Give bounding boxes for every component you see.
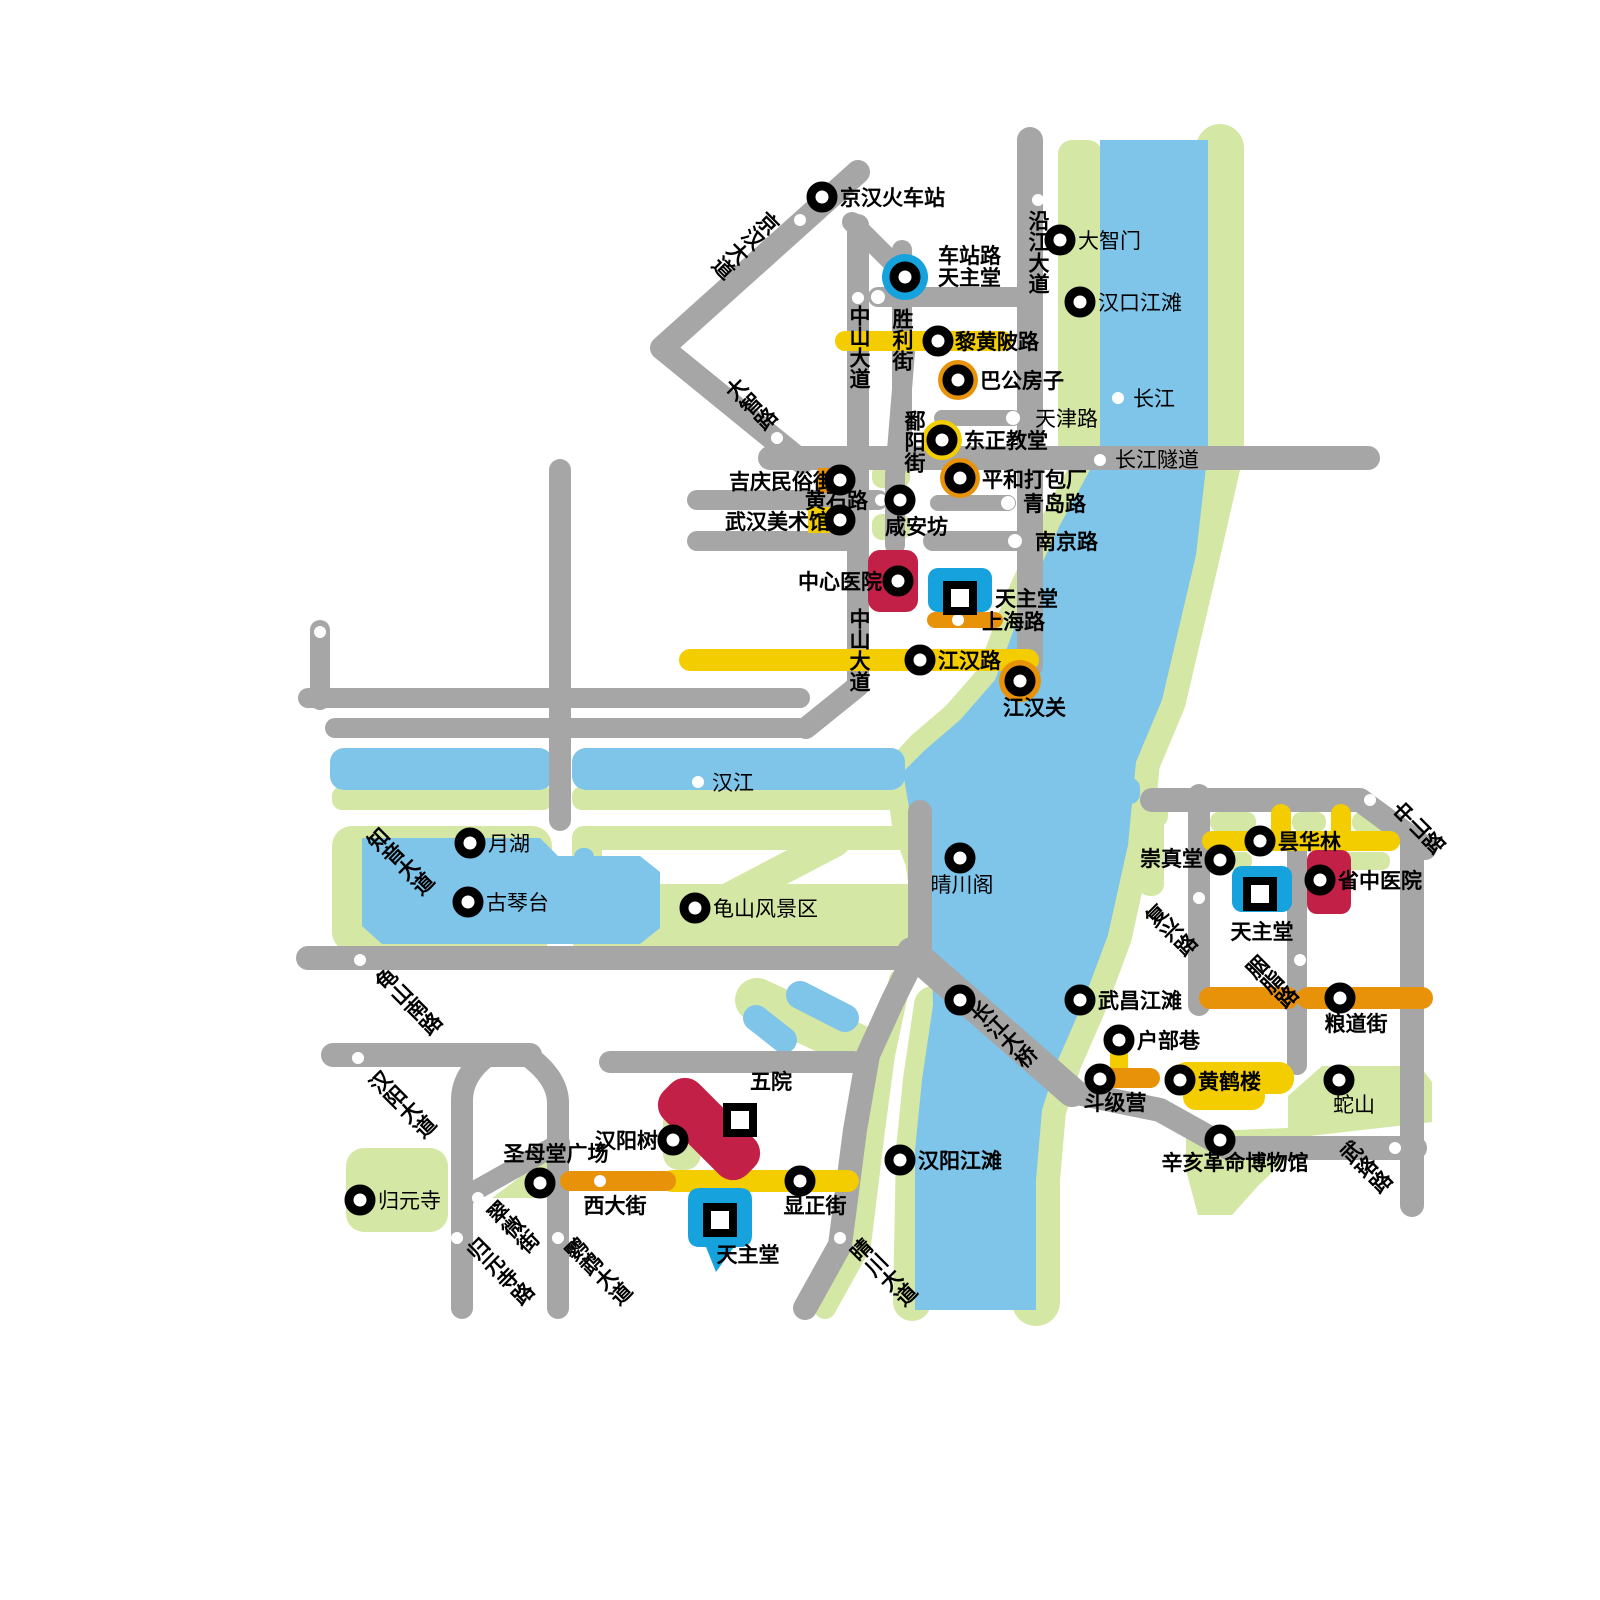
poi-marker-icon xyxy=(789,1170,811,1192)
label-dazhimen: 大智门 xyxy=(1078,229,1141,253)
road-dot-icon xyxy=(692,776,704,788)
road-dot-icon xyxy=(552,1232,564,1244)
poi-marker-icon xyxy=(931,429,953,451)
label-catholic-church-chezhanlu: 天主堂 xyxy=(938,266,1001,290)
poi-marker-icon xyxy=(949,989,971,1011)
label-guishan-south-road: 龟山南路 xyxy=(369,963,447,1041)
label-provincial-tcm-hospital: 省中医院 xyxy=(1337,869,1422,893)
label-moon-lake: 月湖 xyxy=(488,832,530,856)
poi-marker-icon xyxy=(684,897,706,919)
label-tanhualin: 昙华林 xyxy=(1278,830,1341,854)
road-dot-icon xyxy=(1006,411,1020,425)
label-changjiang: 长江 xyxy=(1133,387,1175,411)
label-catholic-church-wuchang: 天主堂 xyxy=(1231,920,1294,944)
pond xyxy=(574,848,594,890)
road-dot-icon xyxy=(1001,496,1015,510)
pond xyxy=(756,1018,784,1040)
label-jianghan-road: 江汉路 xyxy=(938,649,1002,673)
label-changjiang-tunnel: 长江隧道 xyxy=(1115,448,1199,472)
road-dot-icon xyxy=(354,954,366,966)
poi-marker-icon xyxy=(811,186,833,208)
label-yellow-crane-tower: 黄鹤楼 xyxy=(1198,1070,1261,1094)
label-guiyuan-temple: 归元寺 xyxy=(378,1189,441,1213)
park-area xyxy=(1210,812,1256,832)
poi-marker-icon xyxy=(909,649,931,671)
label-shengli-street: 胜利街 xyxy=(890,308,915,372)
road-dot-icon xyxy=(1094,454,1106,466)
label-lihuangpi-road: 黎黄陂路 xyxy=(955,330,1040,354)
label-wuhan-art-museum: 武汉美术馆 xyxy=(725,510,830,534)
road-dot-icon xyxy=(952,614,964,626)
wuhan-stylized-map: 京汉火车站 车站路 天主堂 大智门 汉口江滩 黎黄陂路 巴公房子 东正教堂 平和… xyxy=(0,0,1600,1600)
label-tianjin-road: 天津路 xyxy=(1035,407,1098,431)
poi-marker-icon xyxy=(1328,1069,1350,1091)
road-dot-icon xyxy=(771,432,783,444)
label-shengmutang-square: 圣母堂广场 xyxy=(504,1142,609,1166)
poi-marker-icon xyxy=(927,330,949,352)
poi-marker-icon xyxy=(662,1129,684,1151)
road-dot-icon xyxy=(314,626,326,638)
label-liangdao-street: 粮道街 xyxy=(1325,1012,1388,1036)
poi-marker-icon xyxy=(1169,1069,1191,1091)
label-nanjing-road: 南京路 xyxy=(1035,530,1099,554)
road-dot-icon xyxy=(871,290,885,304)
poi-marker-icon xyxy=(1309,869,1331,891)
river-inlet xyxy=(1108,778,1140,804)
label-hanyang-riverside: 汉阳江滩 xyxy=(918,1149,1002,1173)
road-dot-icon xyxy=(1032,194,1044,206)
road-dot-icon xyxy=(352,1052,364,1064)
label-hankou-riverside: 汉口江滩 xyxy=(1098,291,1182,315)
label-poyang-street: 鄱阳街 xyxy=(902,410,927,474)
poi-marker-icon xyxy=(529,1172,551,1194)
map-canvas: 京汉火车站 车站路 天主堂 大智门 汉口江滩 黎黄陂路 巴公房子 东正教堂 平和… xyxy=(0,0,1600,1600)
label-hanyang-tree: 汉阳树 xyxy=(595,1129,658,1153)
label-qingchuan-pavilion: 晴川阁 xyxy=(931,873,994,897)
church-marker-icon xyxy=(707,1207,733,1233)
road-dot-icon xyxy=(594,1175,606,1187)
poi-marker-icon xyxy=(1009,670,1031,692)
label-chongzhen-church: 崇真堂 xyxy=(1140,847,1203,871)
road-dot-icon xyxy=(451,1232,463,1244)
label-chezhan-road: 车站路 xyxy=(938,244,1002,268)
poi-marker-icon xyxy=(889,489,911,511)
road-dot-icon xyxy=(1112,392,1124,404)
poi-marker-icon xyxy=(459,832,481,854)
park-area xyxy=(1292,812,1326,832)
road-dot-icon xyxy=(794,214,806,226)
poi-marker-icon xyxy=(1049,229,1071,251)
label-jianghan-customs: 江汉关 xyxy=(1003,696,1066,720)
label-xiananfang: 咸安坊 xyxy=(885,515,948,539)
hanjiang-river xyxy=(330,748,553,790)
poi-marker-icon xyxy=(1069,291,1091,313)
poi-marker-icon xyxy=(1329,987,1351,1009)
label-zhongshan-avenue-2: 中山大道 xyxy=(847,608,871,692)
church-marker-icon xyxy=(947,585,973,611)
label-fifth-hospital: 五院 xyxy=(750,1070,792,1094)
poi-marker-icon xyxy=(1089,1068,1111,1090)
park-area xyxy=(572,826,925,850)
label-guqintai: 古琴台 xyxy=(486,891,549,915)
church-marker-icon xyxy=(1247,881,1273,907)
label-jinghan-railway-station: 京汉火车站 xyxy=(840,186,945,210)
road-dot-icon xyxy=(1389,1142,1401,1154)
poi-marker-icon xyxy=(349,1189,371,1211)
label-zhongshan-avenue: 中山大道 xyxy=(847,305,871,389)
label-qingdao-road: 青岛路 xyxy=(1023,492,1087,516)
poi-marker-icon xyxy=(457,891,479,913)
road-dot-icon xyxy=(852,292,864,304)
poi-marker-icon xyxy=(1069,989,1091,1011)
label-hubu-alley: 户部巷 xyxy=(1137,1029,1201,1053)
poi-marker-icon xyxy=(1108,1029,1130,1051)
poi-marker-icon xyxy=(947,369,969,391)
label-snake-hill: 蛇山 xyxy=(1333,1093,1375,1117)
label-hanyang-avenue: 汉阳大道 xyxy=(364,1067,441,1144)
road-dot-icon xyxy=(834,1232,846,1244)
label-doujiying: 斗级营 xyxy=(1084,1091,1147,1115)
label-orthodox-church: 东正教堂 xyxy=(964,429,1048,453)
road-dot-icon xyxy=(1008,534,1022,548)
poi-marker-icon xyxy=(1249,830,1271,852)
label-catholic-church-hanyang: 天主堂 xyxy=(717,1243,780,1267)
poi-marker-icon xyxy=(1209,1129,1231,1151)
label-shanghai-road: 上海路 xyxy=(982,610,1046,634)
label-xi-street: 西大街 xyxy=(584,1194,647,1218)
poi-marker-icon xyxy=(889,1149,911,1171)
label-yanjiang-avenue: 沿江大道 xyxy=(1026,210,1050,294)
label-central-hospital: 中心医院 xyxy=(798,570,882,594)
label-wuchang-riverside: 武昌江滩 xyxy=(1098,989,1182,1013)
label-catholic-church-shanghailu: 天主堂 xyxy=(995,587,1058,611)
road-dot-icon xyxy=(472,1192,484,1204)
label-xianzheng-street: 显正街 xyxy=(784,1194,847,1218)
road-dot-icon xyxy=(1364,794,1376,806)
label-bagong-house: 巴公房子 xyxy=(980,369,1064,393)
label-hanjiang: 汉江 xyxy=(712,771,754,795)
road-dot-icon xyxy=(1193,892,1205,904)
label-guishan-scenic-area: 龟山风景区 xyxy=(713,897,818,921)
poi-marker-icon xyxy=(949,847,971,869)
poi-marker-icon xyxy=(1209,849,1231,871)
poi-marker-icon xyxy=(887,570,909,592)
poi-marker-icon xyxy=(894,266,916,288)
label-yingwu-avenue: 鹦鹉大道 xyxy=(559,1233,636,1310)
label-pinghe-packing-factory: 平和打包厂 xyxy=(982,468,1087,492)
label-xinhai-revolution-museum: 辛亥革命博物馆 xyxy=(1162,1151,1309,1175)
church-marker-icon xyxy=(727,1107,753,1133)
road-dot-icon xyxy=(1294,954,1306,966)
poi-marker-icon xyxy=(949,467,971,489)
